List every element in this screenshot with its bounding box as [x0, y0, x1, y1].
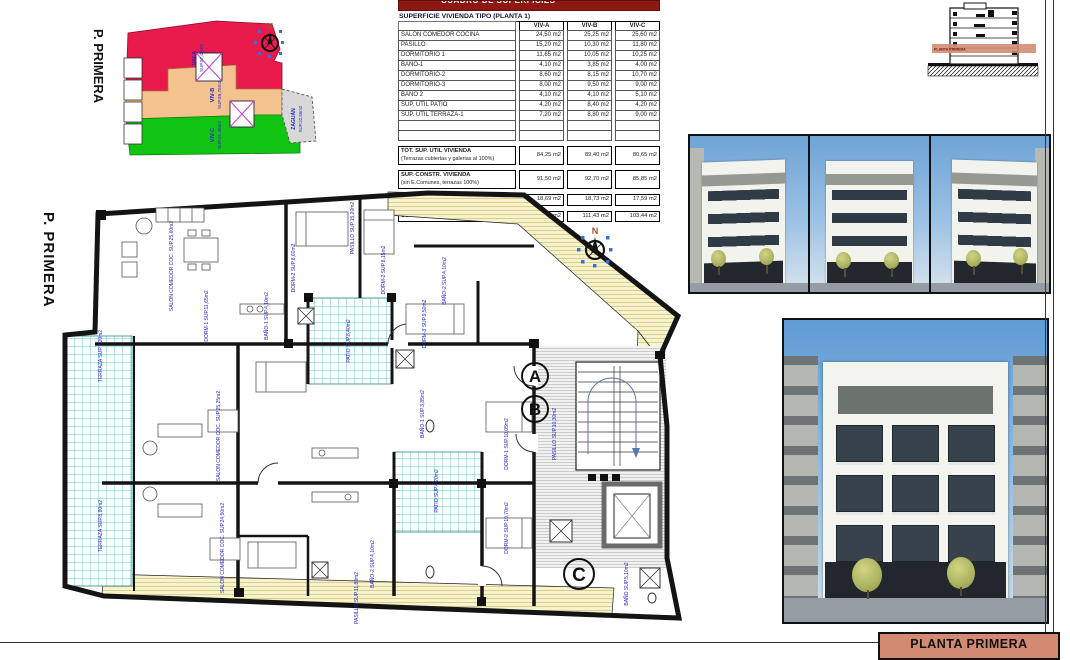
window [948, 475, 995, 512]
unit-label: VIV-C [210, 128, 216, 142]
section-marker-b: B [529, 400, 541, 419]
total-label-main: SUP. CONSTR. VIVIENDA [401, 172, 513, 180]
floor-plan: PASILLO SUP.15,20m2 SALON COMEDOR COC. S… [58, 186, 684, 638]
cell-value: 84,25 m2 [519, 146, 564, 165]
cell-empty [567, 130, 612, 141]
room-label: BAÑO-1 SUP.4,10m2 [263, 292, 270, 340]
sheet-border-line [1045, 0, 1046, 650]
table-total-row: TOT. SUP. UTIL VIVIENDA (Terrazas cubier… [398, 146, 660, 165]
key-plan-floor-label: P. PRIMERA [91, 29, 106, 104]
cell-empty [519, 130, 564, 141]
road [931, 283, 1049, 292]
window [892, 475, 939, 512]
window [836, 475, 883, 512]
unit-label: ZAGUÁN [290, 108, 297, 130]
terrace-band [826, 174, 914, 184]
total-label: TOT. SUP. UTIL VIVIENDA (Terrazas cubier… [398, 146, 516, 165]
room-label: BAÑO-2 SUP.4,10m2 [441, 257, 448, 305]
terrace-band [952, 173, 1037, 186]
window [948, 525, 995, 562]
room-label: PATIO SUP.8,40m2 [346, 319, 352, 363]
cell-value: 80,65 m2 [615, 146, 660, 165]
room-label: PASILLO SUP.10,30m2 [552, 408, 558, 461]
render-strip [688, 134, 1051, 294]
total-label-main: TOT. SUP. UTIL VIVIENDA [401, 148, 513, 156]
sheet-border-line [1053, 0, 1054, 650]
room-label: BAÑO-1 SUP.3,85m2 [419, 390, 426, 438]
room-label: SALON COMEDOR COC. SUP.24,50m2 [220, 503, 226, 593]
section-band-label: PLANTA PRIMERA [934, 48, 966, 52]
room-label: DORM-2 SUP.8,60m2 [291, 243, 297, 292]
window [836, 525, 883, 562]
tree [947, 557, 975, 589]
compass-north-label: N [592, 226, 599, 236]
compass-north-label: N [267, 22, 273, 31]
building-facade [702, 160, 785, 292]
room-label: TERRAZA SUP.7,20m2 [98, 330, 104, 382]
room-label: SALON COMEDOR COC. SUP.25,60m2 [169, 221, 175, 311]
ground-hatch [928, 66, 1038, 76]
unit-label: VIV-A [192, 51, 198, 65]
table-title-band: CUADRO DE SUPERFICIES [398, 0, 660, 11]
room-label: DORM-2 SUP.10,70m2 [504, 502, 510, 554]
cell-empty [398, 130, 516, 141]
building-facade [823, 362, 1007, 622]
tree [884, 252, 899, 269]
tree [836, 252, 851, 269]
window-grid [836, 425, 994, 563]
cell-value: 89,40 m2 [567, 146, 612, 165]
table-title: CUADRO DE SUPERFICIES [441, 0, 556, 5]
terrace-band [702, 173, 785, 186]
roof-terrace [838, 386, 993, 415]
unit-area: SUP.32,55m2 [298, 105, 303, 132]
unit-area: SUP.87,05m2 [199, 44, 204, 72]
window-rows [832, 190, 907, 258]
room-label: DORM-1 SUP.11,65m2 [204, 290, 210, 341]
total-label-sub: (Terrazas cubiertas y galerias al 100%) [401, 156, 513, 164]
building-facade [952, 159, 1037, 292]
road [784, 598, 1047, 622]
staircase [576, 362, 660, 470]
building-section-drawing: PLANTA PRIMERA [920, 2, 1050, 86]
room-label: SALON COMEDOR COC. SUP.25,25m2 [216, 391, 222, 481]
title-block: PLANTA PRIMERA [878, 632, 1060, 660]
window [836, 425, 883, 462]
neighbor-building [784, 356, 818, 622]
room-label: PASILLO SUP.11,80m2 [354, 572, 360, 624]
render-photo-right [929, 136, 1049, 292]
room-label: TERRAZA SUP.8,80m2 [98, 500, 104, 552]
cell-empty [615, 130, 660, 141]
room-label: BAÑO SUP.5,10m2 [623, 562, 630, 605]
unit-label: VIV-B [210, 88, 216, 102]
window [948, 425, 995, 462]
section-roof [964, 3, 986, 9]
room-label: DORM-3 SUP.9,50m2 [422, 299, 428, 348]
plan-sheet: { "palette":{ "viv_a_red":"#e91a4c","viv… [0, 0, 1070, 650]
table-row-empty [398, 131, 660, 141]
render-photo-large [782, 318, 1049, 624]
section-marker-c: C [572, 565, 586, 586]
unit-area: SUP.81,35m2 [217, 121, 222, 149]
key-plan: P. PRIMERA VIV-A SUP.87,05m2 VIV-B SUP.8… [68, 3, 330, 159]
plan-floor-label: P. PRIMERA [40, 212, 57, 362]
room-label: PATIO SUP.4,20m2 [434, 469, 440, 513]
road [690, 283, 808, 292]
tree [852, 558, 882, 592]
room-label: BAÑO-2 SUP.4,10m2 [369, 540, 376, 588]
unit-area: SUP.89,75m2 [217, 81, 222, 109]
tree [759, 248, 774, 265]
window [892, 425, 939, 462]
render-photo-left [690, 136, 808, 292]
road [810, 283, 928, 292]
neighbor-building [1013, 356, 1047, 622]
render-photo-center [808, 136, 928, 292]
room-label: PASILLO SUP.15,20m2 [350, 202, 356, 255]
room-label: DORM-1 SUP.10,05m2 [504, 418, 510, 470]
section-marker-a: A [529, 367, 541, 386]
building-facade [826, 161, 914, 292]
window [892, 525, 939, 562]
room-label: DORM-2 SUP.8,15m2 [381, 245, 387, 294]
